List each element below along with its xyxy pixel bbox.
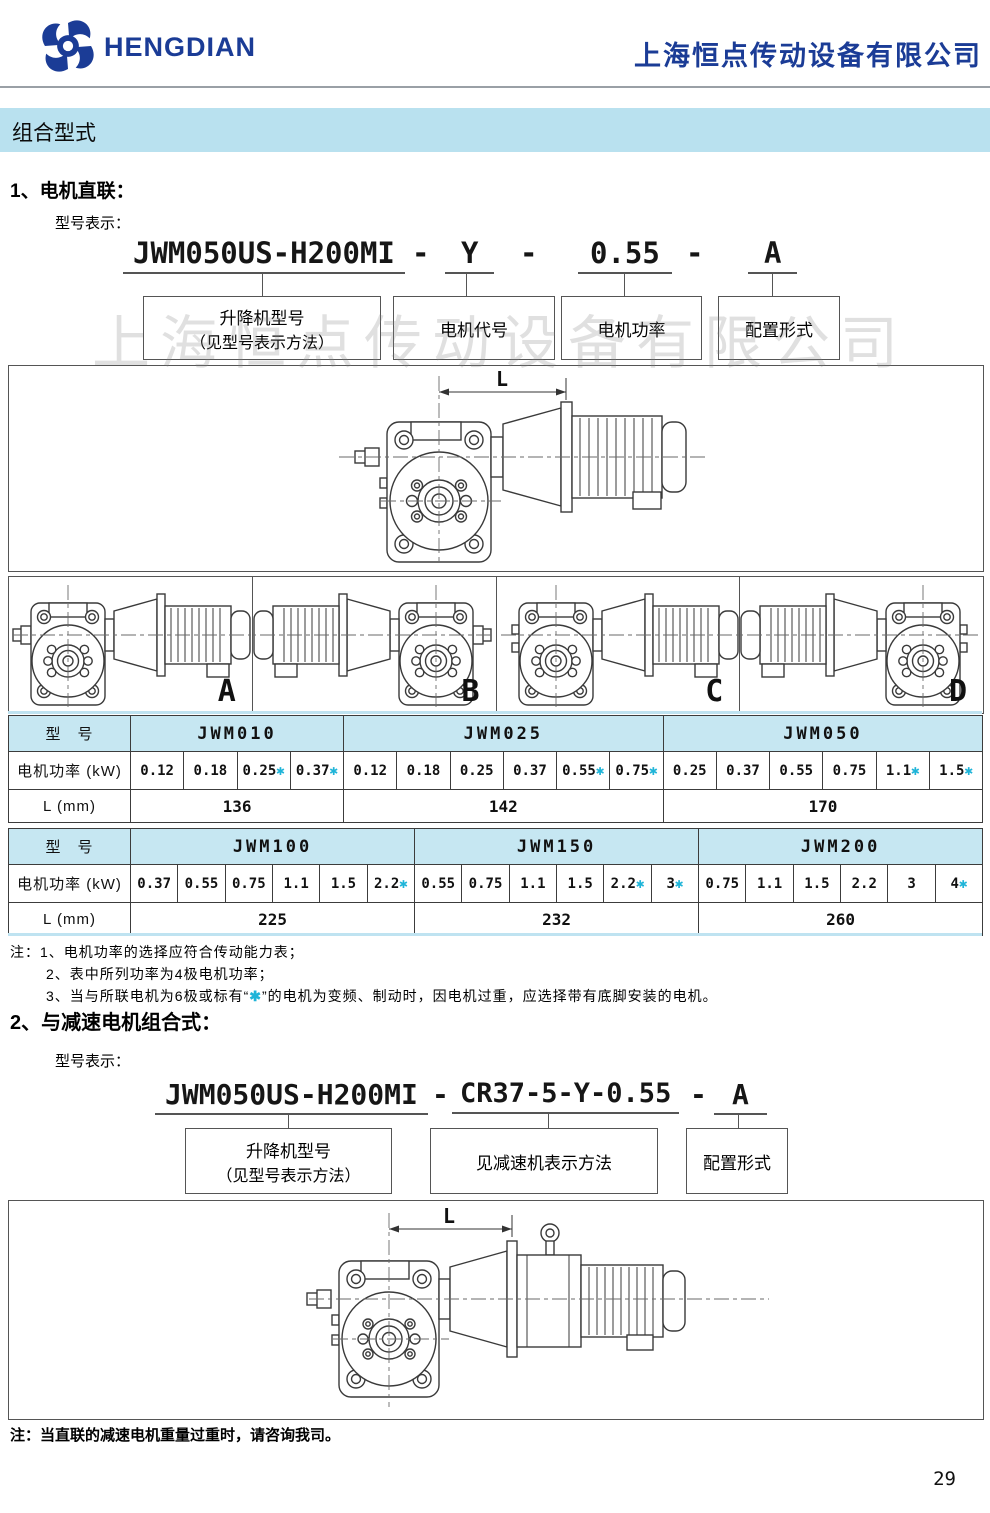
model-name-cell: JWM100 xyxy=(131,829,415,865)
power-value-cell: 1.1 xyxy=(272,865,319,903)
power-value-cell: 0.37 xyxy=(503,752,556,790)
power-value: 0.25 xyxy=(673,763,707,779)
power-value: 0.75 xyxy=(833,763,867,779)
power-value-cell: 3 xyxy=(888,865,935,903)
power-value-cell: 0.25 xyxy=(663,752,716,790)
power-value-cell: 0.12 xyxy=(131,752,184,790)
label-box-motor-code: 电机代号 xyxy=(393,296,555,360)
power-value-cell: 0.37 xyxy=(716,752,769,790)
power-value: 0.18 xyxy=(407,763,441,779)
power-value: 0.55 xyxy=(779,763,813,779)
model-name-cell: JWM050 xyxy=(663,716,983,752)
code2-part-reducer: CR37-5-Y-0.55 xyxy=(452,1078,679,1114)
model-name-cell: JWM025 xyxy=(344,716,664,752)
star-mark: ✱ xyxy=(399,876,407,892)
table-header-row: 型 号JWM100JWM150JWM200 xyxy=(9,829,983,865)
power-value-cell: 4✱ xyxy=(935,865,982,903)
config-drawing-d xyxy=(740,577,982,712)
code1-part-config: A xyxy=(748,236,797,274)
length-row: L (mm)136142170 xyxy=(9,790,983,823)
power-value: 1.5 xyxy=(568,876,593,892)
gearmotor-reducer-drawing: L xyxy=(9,1201,980,1416)
company-name: 上海恒点传动设备有限公司 xyxy=(634,34,982,73)
power-value-cell: 1.1✱ xyxy=(876,752,929,790)
power-value: 3 xyxy=(907,876,915,892)
power-value-cell: 2.2✱ xyxy=(367,865,414,903)
spec-table-small-models: 型 号JWM010JWM025JWM050电机功率 (kW)0.120.180.… xyxy=(8,715,983,823)
connector-line xyxy=(262,272,263,296)
length-value-cell: 225 xyxy=(131,903,415,936)
power-value: 0.12 xyxy=(353,763,387,779)
power-value-cell: 3✱ xyxy=(651,865,698,903)
connector-line xyxy=(624,272,625,296)
power-value: 2.2 xyxy=(852,876,877,892)
code1-dash-1: - xyxy=(412,236,429,270)
power-value-cell: 0.18 xyxy=(184,752,237,790)
table-accent-strip xyxy=(8,933,982,936)
connector-line xyxy=(548,1113,549,1128)
config-drawing-c xyxy=(497,577,739,712)
config-cell-d: D xyxy=(740,577,983,713)
power-row: 电机功率 (kW)0.370.550.751.11.52.2✱0.550.751… xyxy=(9,865,983,903)
star-mark: ✱ xyxy=(649,763,657,779)
code1-part-model: JWM050US-H200MI xyxy=(123,236,405,274)
star-mark: ✱ xyxy=(276,763,284,779)
model-name-cell: JWM010 xyxy=(131,716,344,752)
code1-dash-3: - xyxy=(686,236,703,270)
power-value: 0.55 xyxy=(562,763,596,779)
power-value-cell: 0.75 xyxy=(823,752,876,790)
power-value-cell: 0.37 xyxy=(131,865,178,903)
power-value: 0.37 xyxy=(296,763,330,779)
config-letter-d: D xyxy=(949,674,967,709)
power-value: 0.25 xyxy=(460,763,494,779)
star-mark: ✱ xyxy=(911,763,919,779)
spec-table-large-models: 型 号JWM100JWM150JWM200电机功率 (kW)0.370.550.… xyxy=(8,828,983,936)
star-mark: ✱ xyxy=(675,876,683,892)
connector-line xyxy=(288,1113,289,1128)
power-value-cell: 1.5 xyxy=(320,865,367,903)
gearmotor-direct-drawing: L xyxy=(9,366,980,568)
assembly-drawing-2: L xyxy=(8,1200,984,1420)
banner-title: 组合型式 xyxy=(12,117,96,147)
label-box-config-form: 配置形式 xyxy=(718,296,840,360)
power-value-cell: 1.1 xyxy=(746,865,793,903)
power-row: 电机功率 (kW)0.120.180.25✱0.37✱0.120.180.250… xyxy=(9,752,983,790)
power-value: 0.37 xyxy=(137,876,171,892)
power-value: 2.2 xyxy=(611,876,636,892)
power-value-cell: 0.55 xyxy=(178,865,225,903)
label-box-line: 配置形式 xyxy=(687,1149,787,1174)
star-mark: ✱ xyxy=(596,763,604,779)
config-cell-c: C xyxy=(497,577,741,713)
power-value-cell: 0.12 xyxy=(344,752,397,790)
label-box-motor-power: 电机功率 xyxy=(561,296,702,360)
power-value: 1.1 xyxy=(757,876,782,892)
note-line-3-post: ”的电机为变频、制动时，因电机过重，应选择带有底脚安装的电机。 xyxy=(262,988,718,1004)
connector-line xyxy=(466,272,467,296)
section1-model-label: 型号表示： xyxy=(55,212,130,233)
label-box-lifter-model-2: 升降机型号 （见型号表示方法） xyxy=(185,1128,392,1194)
label-box-config-form-2: 配置形式 xyxy=(686,1128,788,1194)
power-value-cell: 0.25✱ xyxy=(237,752,290,790)
dimension-label-L-2: L xyxy=(443,1204,455,1228)
note-star-mark: ✱ xyxy=(249,988,262,1004)
power-value: 0.55 xyxy=(421,876,455,892)
config-options-row: A B C D xyxy=(8,576,984,714)
power-value: 0.37 xyxy=(726,763,760,779)
star-mark: ✱ xyxy=(636,876,644,892)
power-value: 0.37 xyxy=(513,763,547,779)
power-value-cell: 0.75✱ xyxy=(610,752,663,790)
length-label-cell: L (mm) xyxy=(9,903,131,936)
length-row: L (mm)225232260 xyxy=(9,903,983,936)
label-box-line: 电机功率 xyxy=(562,316,701,341)
power-value-cell: 0.75 xyxy=(225,865,272,903)
power-value-cell: 0.55✱ xyxy=(557,752,610,790)
code1-part-power: 0.55 xyxy=(578,236,672,274)
config-drawing-b xyxy=(253,577,495,712)
label-box-line: 配置形式 xyxy=(719,316,839,341)
power-value: 1.1 xyxy=(284,876,309,892)
length-value-cell: 260 xyxy=(699,903,983,936)
header-divider xyxy=(0,86,990,88)
power-label-cell: 电机功率 (kW) xyxy=(9,752,131,790)
dimension-label-L: L xyxy=(496,367,508,391)
model-name-cell: JWM200 xyxy=(699,829,983,865)
code2-dash-2: - xyxy=(690,1078,707,1111)
power-value: 1.5 xyxy=(331,876,356,892)
power-label-cell: 电机功率 (kW) xyxy=(9,865,131,903)
power-value: 2.2 xyxy=(374,876,399,892)
label-box-lifter-model: 升降机型号 （见型号表示方法） xyxy=(143,296,381,360)
code2-dash-1: - xyxy=(432,1078,449,1111)
power-value-cell: 0.55 xyxy=(415,865,462,903)
bottom-note: 注：当直联的减速电机重量过重时，请咨询我司。 xyxy=(10,1424,340,1445)
connector-line xyxy=(738,1113,739,1128)
model-header-cell: 型 号 xyxy=(9,716,131,752)
model-name-cell: JWM150 xyxy=(415,829,699,865)
power-value-cell: 2.2✱ xyxy=(604,865,651,903)
page-number: 29 xyxy=(933,1468,956,1490)
power-value: 4 xyxy=(951,876,959,892)
power-value: 1.5 xyxy=(804,876,829,892)
table-header-row: 型 号JWM010JWM025JWM050 xyxy=(9,716,983,752)
length-value-cell: 232 xyxy=(415,903,699,936)
connector-line xyxy=(772,272,773,296)
label-box-line: （见型号表示方法） xyxy=(186,1162,391,1186)
config-cell-b: B xyxy=(253,577,497,713)
label-box-line: 电机代号 xyxy=(394,316,554,341)
label-box-line: 升降机型号 xyxy=(144,304,380,329)
table-accent-strip xyxy=(8,711,982,714)
power-value-cell: 0.55 xyxy=(770,752,823,790)
length-value-cell: 170 xyxy=(663,790,983,823)
note-line-3-pre: 3、当与所联电机为6极或标有“ xyxy=(46,988,249,1004)
config-letter-b: B xyxy=(461,674,479,709)
star-mark: ✱ xyxy=(330,763,338,779)
model-header-cell: 型 号 xyxy=(9,829,131,865)
power-value: 1.5 xyxy=(939,763,964,779)
note-line-2: 2、表中所列功率为4极电机功率； xyxy=(46,964,274,984)
power-value: 0.75 xyxy=(705,876,739,892)
label-box-line: 见减速机表示方法 xyxy=(431,1149,657,1174)
logo-text: HENGDIAN xyxy=(104,32,256,63)
power-value: 1.1 xyxy=(520,876,545,892)
code2-part-config: A xyxy=(714,1078,767,1115)
power-value: 0.55 xyxy=(185,876,219,892)
star-mark: ✱ xyxy=(964,763,972,779)
power-value: 0.75 xyxy=(232,876,266,892)
power-value-cell: 0.75 xyxy=(462,865,509,903)
section2-heading: 2、与减速电机组合式： xyxy=(10,1006,221,1035)
config-cell-a: A xyxy=(9,577,253,713)
config-letter-a: A xyxy=(218,674,236,709)
config-drawing-a xyxy=(9,577,251,712)
label-box-line: 升降机型号 xyxy=(186,1137,391,1162)
length-label-cell: L (mm) xyxy=(9,790,131,823)
length-value-cell: 136 xyxy=(131,790,344,823)
power-value: 0.25 xyxy=(243,763,277,779)
note-line-3: 3、当与所联电机为6极或标有“✱”的电机为变频、制动时，因电机过重，应选择带有底… xyxy=(46,986,718,1006)
code1-part-motorcode: Y xyxy=(445,236,494,274)
section2-model-label: 型号表示： xyxy=(55,1050,130,1071)
power-value-cell: 0.25 xyxy=(450,752,503,790)
power-value-cell: 1.5✱ xyxy=(929,752,982,790)
power-value-cell: 0.18 xyxy=(397,752,450,790)
power-value-cell: 0.75 xyxy=(699,865,746,903)
power-value: 1.1 xyxy=(886,763,911,779)
length-value-cell: 142 xyxy=(344,790,664,823)
power-value: 0.75 xyxy=(615,763,649,779)
label-box-reducer-note: 见减速机表示方法 xyxy=(430,1128,658,1194)
power-value: 0.18 xyxy=(194,763,228,779)
power-value-cell: 1.1 xyxy=(509,865,556,903)
power-value: 0.12 xyxy=(140,763,174,779)
note-line-1: 注：1、电机功率的选择应符合传动能力表； xyxy=(10,942,304,962)
config-letter-c: C xyxy=(705,674,723,709)
power-value: 0.75 xyxy=(469,876,503,892)
code2-part-model: JWM050US-H200MI xyxy=(155,1078,428,1115)
power-value-cell: 1.5 xyxy=(557,865,604,903)
catalog-page: HENGDIAN 上海恒点传动设备有限公司 组合型式 1、电机直联： 型号表示：… xyxy=(0,0,990,1513)
section-banner: 组合型式 xyxy=(0,108,990,152)
power-value-cell: 1.5 xyxy=(793,865,840,903)
label-box-line: （见型号表示方法） xyxy=(144,329,380,353)
assembly-drawing-1: L xyxy=(8,365,984,572)
code1-dash-2: - xyxy=(520,236,537,270)
power-value-cell: 2.2 xyxy=(841,865,888,903)
section1-heading: 1、电机直联： xyxy=(10,176,135,203)
pinwheel-logo-icon xyxy=(36,14,100,78)
power-value: 3 xyxy=(666,876,674,892)
star-mark: ✱ xyxy=(959,876,967,892)
power-value-cell: 0.37✱ xyxy=(290,752,343,790)
